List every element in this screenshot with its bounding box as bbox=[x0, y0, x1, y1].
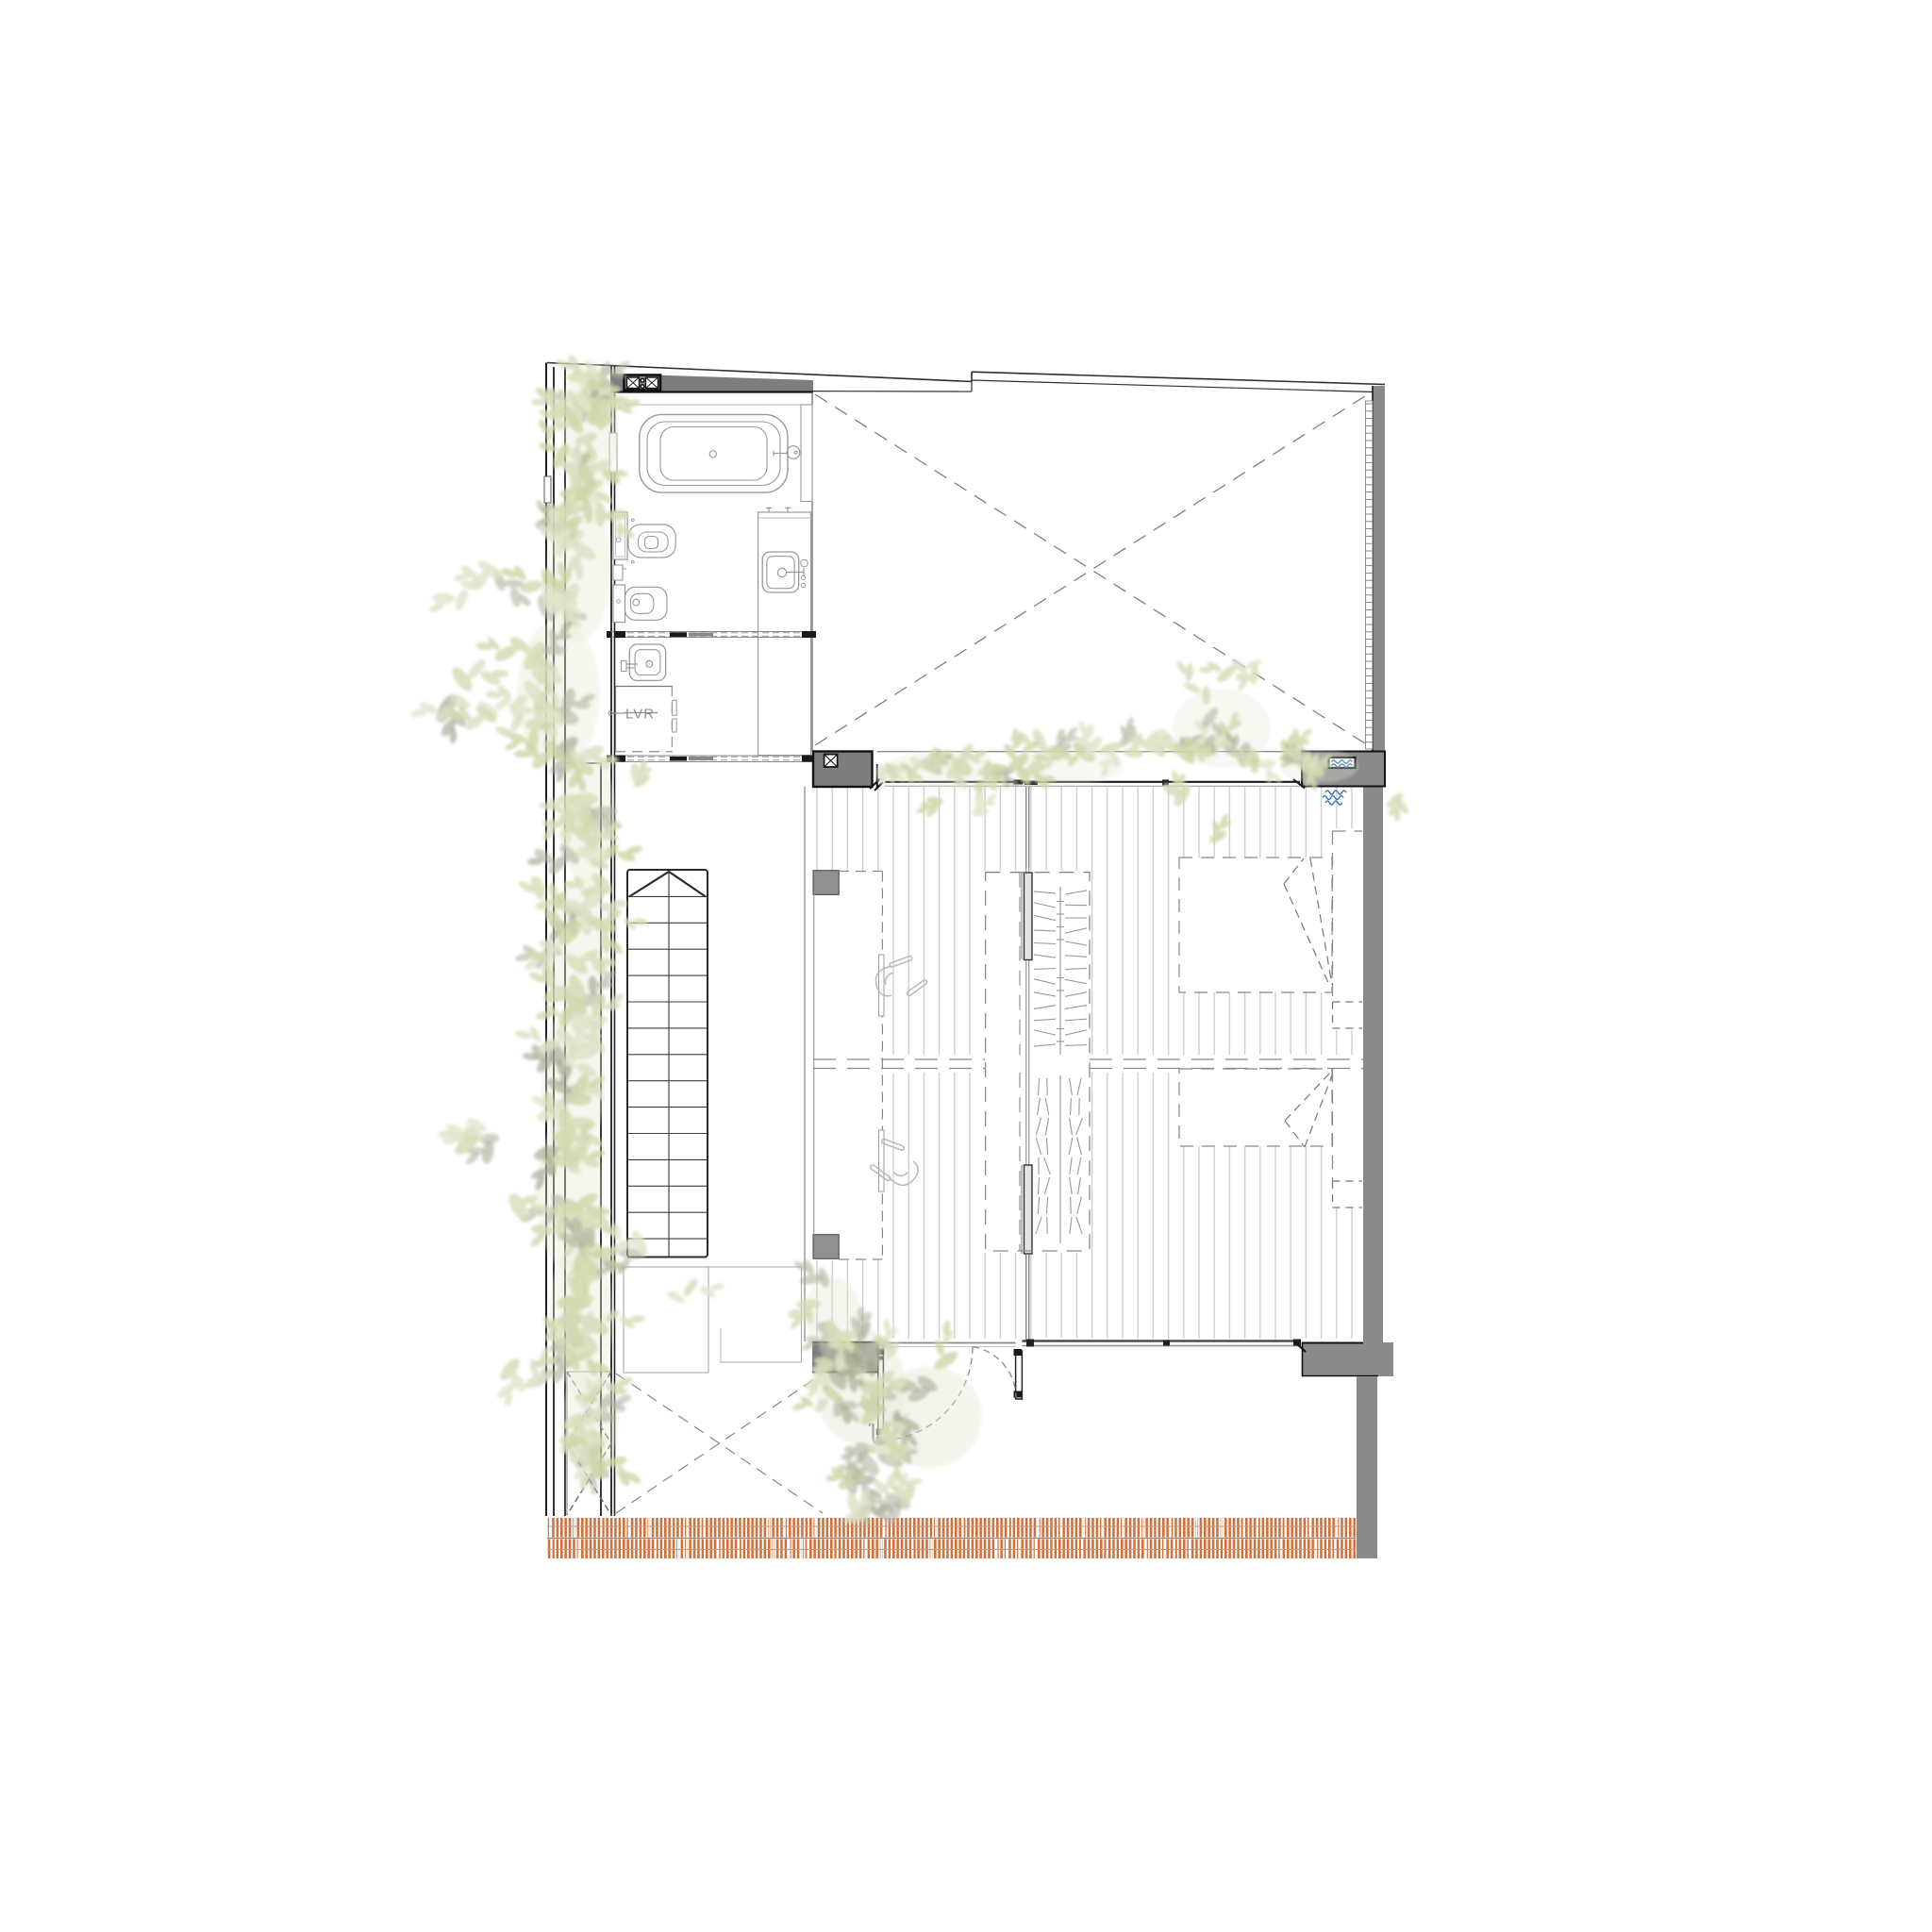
svg-text:LVR: LVR bbox=[625, 707, 655, 723]
